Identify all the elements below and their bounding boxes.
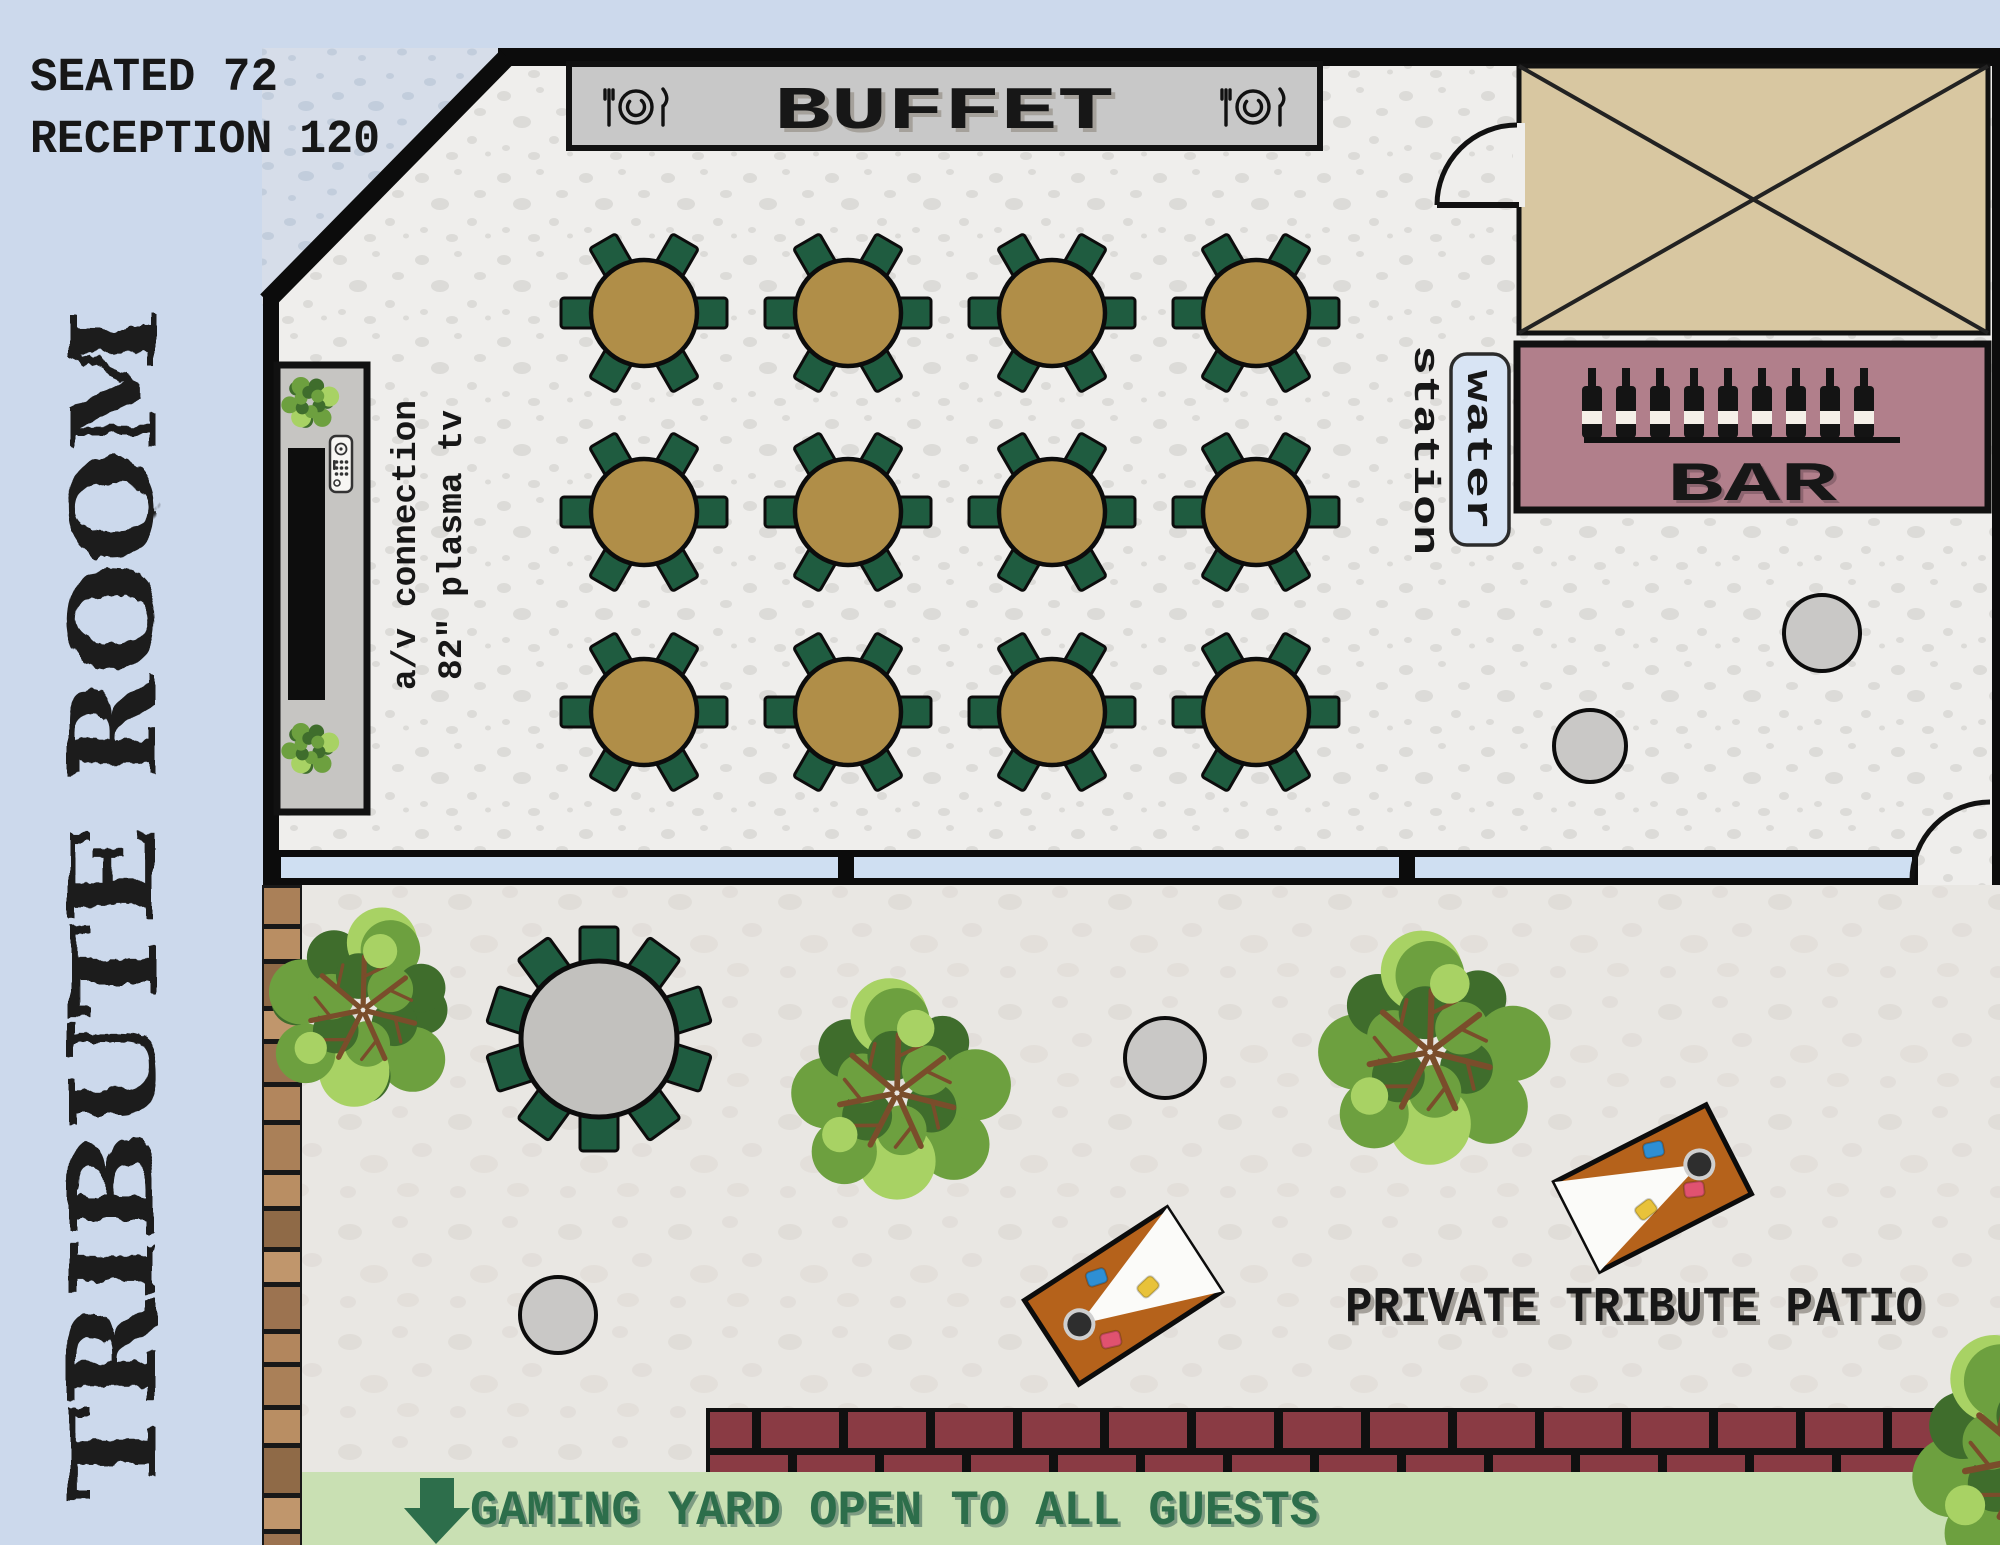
table-top [795, 459, 901, 565]
cocktail-table [1125, 1018, 1205, 1098]
deck-plank [264, 1367, 300, 1405]
deck-plank [264, 1534, 300, 1545]
brick [1109, 1412, 1187, 1448]
deck-plank [264, 1410, 300, 1443]
floor-plan: GAMING YARD OPEN TO ALL GUESTS GAMING YA… [0, 0, 2000, 1545]
cocktail-table [1554, 710, 1626, 782]
deck-plank [264, 1448, 300, 1493]
brick [1631, 1412, 1709, 1448]
brick [1022, 1412, 1100, 1448]
brick [848, 1412, 926, 1448]
window [1415, 857, 1912, 878]
av-note-line2: 82" plasma tv [434, 410, 472, 680]
window-band [263, 850, 1918, 885]
deck-plank [264, 929, 300, 959]
deck-plank [264, 1125, 300, 1170]
deck-plank [264, 888, 300, 924]
brick [761, 1412, 839, 1448]
cocktail-table [1784, 595, 1860, 671]
table-top [795, 260, 901, 366]
table-top [795, 659, 901, 765]
bean-bag [1099, 1330, 1122, 1349]
table-top [999, 459, 1105, 565]
av-note-line1: a/v connection [388, 400, 426, 690]
brick [1544, 1412, 1622, 1448]
patio-label: PRIVATE TRIBUTE PATIO [1345, 1280, 1923, 1337]
table-top [591, 459, 697, 565]
branch [363, 957, 364, 1005]
banner-text: GAMING YARD OPEN TO ALL GUESTS [470, 1483, 1318, 1539]
brick [1805, 1412, 1883, 1448]
tv-screen [288, 448, 325, 700]
closet-door-opening [1513, 123, 1525, 207]
gaming-banner: GAMING YARD OPEN TO ALL GUESTS GAMING YA… [302, 1472, 2000, 1545]
brick [710, 1412, 752, 1448]
brick [1196, 1412, 1274, 1448]
water-station-label-1: water [1457, 370, 1498, 530]
bean-bag [1642, 1140, 1665, 1159]
room-title: TRIBUTE ROOM [44, 310, 183, 1500]
table-top [591, 659, 697, 765]
buffet-label: BUFFET [774, 79, 1114, 147]
water-station-label-2: station [1404, 345, 1445, 555]
cocktail-table [520, 1277, 596, 1353]
media-wall [277, 365, 367, 812]
table-top [1203, 659, 1309, 765]
capacity-seated: SEATED 72 [30, 52, 278, 105]
deck-plank [264, 1087, 300, 1120]
bar: BAR BAR [1517, 344, 1988, 520]
window [854, 857, 1399, 878]
brick [1718, 1412, 1796, 1448]
deck-plank [264, 1252, 300, 1282]
storage-closet [1437, 66, 1988, 333]
deck-plank [264, 1211, 300, 1247]
wine-bottles [1582, 368, 1874, 438]
table-top [999, 659, 1105, 765]
deck-plank [264, 1498, 300, 1529]
table-top [1203, 260, 1309, 366]
table-top [1203, 459, 1309, 565]
brick [935, 1412, 1013, 1448]
patio-table-group [487, 927, 712, 1151]
brick [1457, 1412, 1535, 1448]
window [281, 857, 838, 878]
remote-icon [330, 436, 352, 492]
table-top [999, 260, 1105, 366]
capacity-reception: RECEPTION 120 [30, 114, 380, 167]
water-station: station water [1404, 345, 1509, 555]
deck-plank [264, 1175, 300, 1206]
brick [1283, 1412, 1361, 1448]
bean-bag [1683, 1181, 1705, 1198]
branch [897, 1035, 898, 1088]
branch [1430, 990, 1431, 1046]
bar-label: BAR [1667, 453, 1838, 517]
brick [1370, 1412, 1448, 1448]
patio-table-top [521, 961, 677, 1117]
deck-plank [264, 1334, 300, 1362]
deck-plank [264, 1287, 300, 1329]
buffet-station: BUFFET BUFFET [569, 64, 1320, 151]
table-top [591, 260, 697, 366]
